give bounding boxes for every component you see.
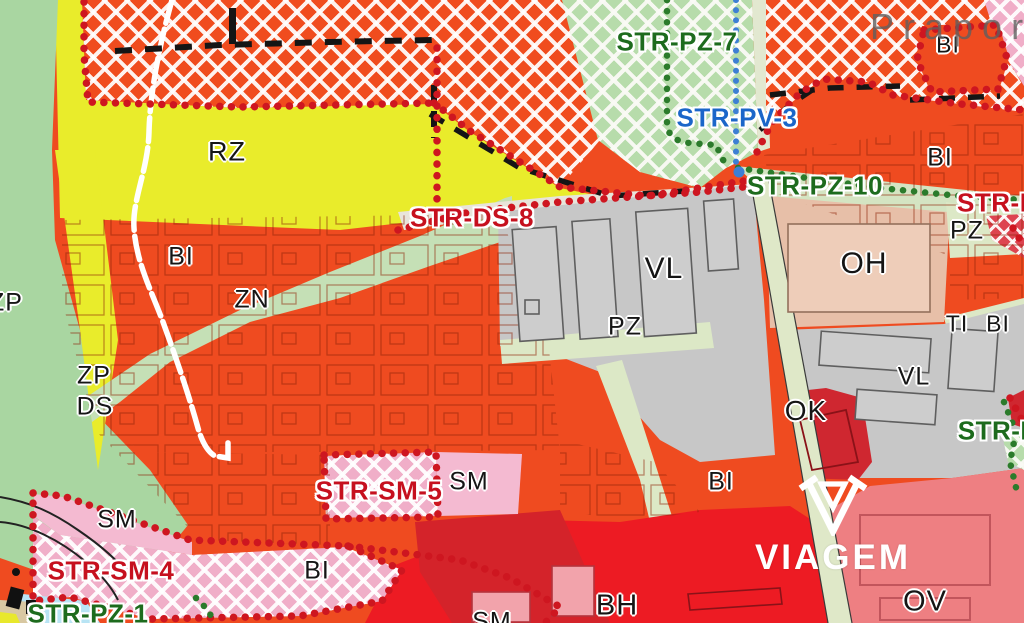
zone-label-ok: OK [785,395,827,427]
place-name-watermark: Praporec [870,6,1024,48]
str-label-pz-10: STR-PZ-10 [747,171,883,202]
viagem-logo-text: VIAGEM [748,538,918,578]
zone-label-bi-left: BI [168,243,194,272]
zone-label-ds: DS [77,393,114,422]
zone-label-zp-edge: ZP [0,289,23,318]
zone-label-zn: ZN [234,286,269,315]
str-label-pz-1: STR-PZ-1 [28,599,149,623]
zone-label-pz-center: PZ [608,313,642,342]
zone-label-ti: TI [946,311,968,338]
zone-label-oh: OH [841,247,888,281]
zone-label-sm-right: SM [449,468,489,497]
zone-label-bi-upper-right: BI [927,144,953,173]
str-label-pv-3: STR-PV-3 [676,103,797,134]
str-label-p: STR-P [958,416,1024,447]
zoning-map[interactable]: RZ BI ZN ZP ZP DS VL PZ OH PZ TI BI VL O… [0,0,1024,623]
str-label-ds-8: STR-DS-8 [410,203,534,234]
zone-label-zp: ZP [77,362,111,391]
viagem-watermark: VIAGEM [748,472,918,578]
zone-label-vl-center: VL [645,252,684,286]
zone-label-vl-right: VL [898,363,931,392]
zone-label-sm-bottom: SM [472,608,512,623]
viagem-logo-icon [796,472,870,536]
zone-label-bh: BH [596,590,638,623]
zone-label-bi-bottom-left: BI [304,557,330,586]
zone-label-bi-right: BI [986,311,1010,338]
zone-label-rz: RZ [208,137,246,168]
str-label-pz-7: STR-PZ-7 [617,27,738,58]
zone-label-pz-right: PZ [950,217,984,246]
str-label-sm-5: STR-SM-5 [316,476,443,507]
zone-label-ov: OV [903,586,947,619]
str-label-sm-4: STR-SM-4 [48,556,175,587]
zone-label-sm-left: SM [97,506,137,535]
str-label-b: STR-B [957,188,1024,219]
zone-label-bi-bottom-center: BI [708,468,734,497]
